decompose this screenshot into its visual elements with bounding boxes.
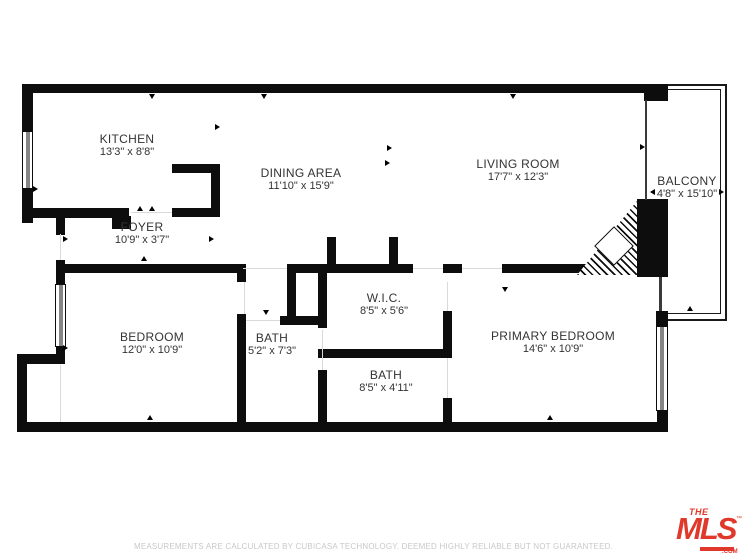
logo-mls-text: MLS (676, 511, 735, 547)
wall (172, 208, 219, 217)
room-label-balcony: BALCONY 4'8" x 15'10" (657, 175, 717, 201)
room-dims: 12'0" x 10'9" (120, 344, 184, 357)
room-dims: 11'10" x 15'9" (261, 180, 342, 193)
wall (60, 264, 243, 273)
wall (327, 237, 336, 269)
room-dims: 10'9" x 3'7" (115, 234, 169, 247)
window-pane (59, 285, 62, 346)
door-tick (650, 189, 655, 195)
room-dims: 13'3" x 8'8" (100, 146, 155, 159)
opening-line (243, 268, 287, 269)
logo-trademark: ™ (736, 516, 742, 522)
room-name: DINING AREA (261, 167, 342, 180)
room-label-kitchen: KITCHEN 13'3" x 8'8" (100, 133, 155, 159)
room-label-wic: W.I.C. 8'5" x 5'6" (360, 292, 408, 318)
opening-line (244, 282, 245, 314)
door-tick (387, 145, 392, 151)
wall (17, 354, 27, 432)
door-tick (137, 206, 143, 211)
room-dims: 5'2" x 7'3" (248, 345, 296, 358)
wall (237, 314, 246, 426)
wall (237, 264, 246, 282)
door-tick (261, 94, 267, 99)
door-tick (209, 236, 214, 242)
opening-line (447, 358, 448, 398)
room-label-bedroom: BEDROOM 12'0" x 10'9" (120, 331, 184, 357)
wall (443, 311, 452, 358)
room-label-bath-2: BATH 8'5" x 4'11" (359, 369, 412, 395)
room-dims: 14'6" x 10'9" (491, 343, 615, 356)
window-pane (26, 132, 29, 188)
door-tick (147, 415, 153, 420)
kitchen-window (22, 131, 33, 189)
bedroom-window (55, 284, 66, 347)
opening-line (447, 282, 448, 311)
window-pane (661, 327, 664, 410)
logo-com-text: .COM (722, 549, 738, 555)
sliding-door-line (645, 100, 647, 200)
wall (17, 422, 668, 432)
wall (657, 410, 668, 432)
opening-line (60, 234, 61, 260)
wall (644, 93, 668, 101)
wall (443, 264, 462, 273)
door-tick (141, 256, 147, 261)
opening-line (131, 212, 172, 213)
primary-bedroom-window (656, 326, 668, 411)
wall (318, 370, 327, 428)
measurement-disclaimer: MEASUREMENTS ARE CALCULATED BY CUBICASA … (0, 542, 747, 551)
opening-line (413, 268, 443, 269)
door-tick (63, 236, 68, 242)
room-dims: 8'5" x 5'6" (360, 305, 408, 318)
wall (56, 216, 65, 235)
room-label-dining-area: DINING AREA 11'10" x 15'9" (261, 167, 342, 193)
wall (637, 199, 668, 277)
room-name: LIVING ROOM (476, 158, 559, 171)
door-tick (149, 94, 155, 99)
wall (22, 84, 668, 93)
room-label-bath-1: BATH 5'2" x 7'3" (248, 332, 296, 358)
room-dims: 17'7" x 12'3" (476, 171, 559, 184)
the-mls-logo: THE MLS .COM ™ (676, 507, 744, 555)
wall (287, 268, 296, 318)
room-label-primary-bedroom: PRIMARY BEDROOM 14'6" x 10'9" (491, 330, 615, 356)
wall (22, 84, 33, 133)
wall (318, 268, 327, 328)
opening-line (462, 268, 502, 269)
door-tick (33, 186, 38, 192)
door-tick (149, 206, 155, 211)
wall (656, 311, 668, 327)
room-name: BALCONY (657, 175, 717, 188)
door-tick (640, 144, 645, 150)
floorplan-page: KITCHEN 13'3" x 8'8" DINING AREA 11'10" … (0, 0, 747, 560)
door-tick (63, 345, 68, 351)
room-name: BATH (248, 332, 296, 345)
wall (389, 237, 398, 269)
door-tick (547, 415, 553, 420)
opening-line (60, 365, 61, 422)
room-label-foyer: FOYER 10'9" x 3'7" (115, 221, 169, 247)
opening-line (246, 320, 280, 321)
room-name: W.I.C. (360, 292, 408, 305)
door-tick (719, 189, 724, 195)
wall (659, 277, 662, 311)
balcony-railing-inner (668, 89, 721, 314)
wall (280, 316, 319, 325)
room-dims: 4'8" x 15'10" (657, 188, 717, 201)
room-dims: 8'5" x 4'11" (359, 382, 412, 395)
room-name: FOYER (115, 221, 169, 234)
door-tick (502, 287, 508, 292)
room-name: BATH (359, 369, 412, 382)
wall (318, 349, 452, 358)
room-name: BEDROOM (120, 331, 184, 344)
opening-line (322, 330, 323, 370)
door-tick (385, 160, 390, 166)
room-name: KITCHEN (100, 133, 155, 146)
door-tick (687, 306, 693, 311)
room-label-living-room: LIVING ROOM 17'7" x 12'3" (476, 158, 559, 184)
door-tick (263, 310, 269, 315)
door-tick (510, 94, 516, 99)
wall (443, 398, 452, 428)
room-name: PRIMARY BEDROOM (491, 330, 615, 343)
door-tick (215, 124, 220, 130)
